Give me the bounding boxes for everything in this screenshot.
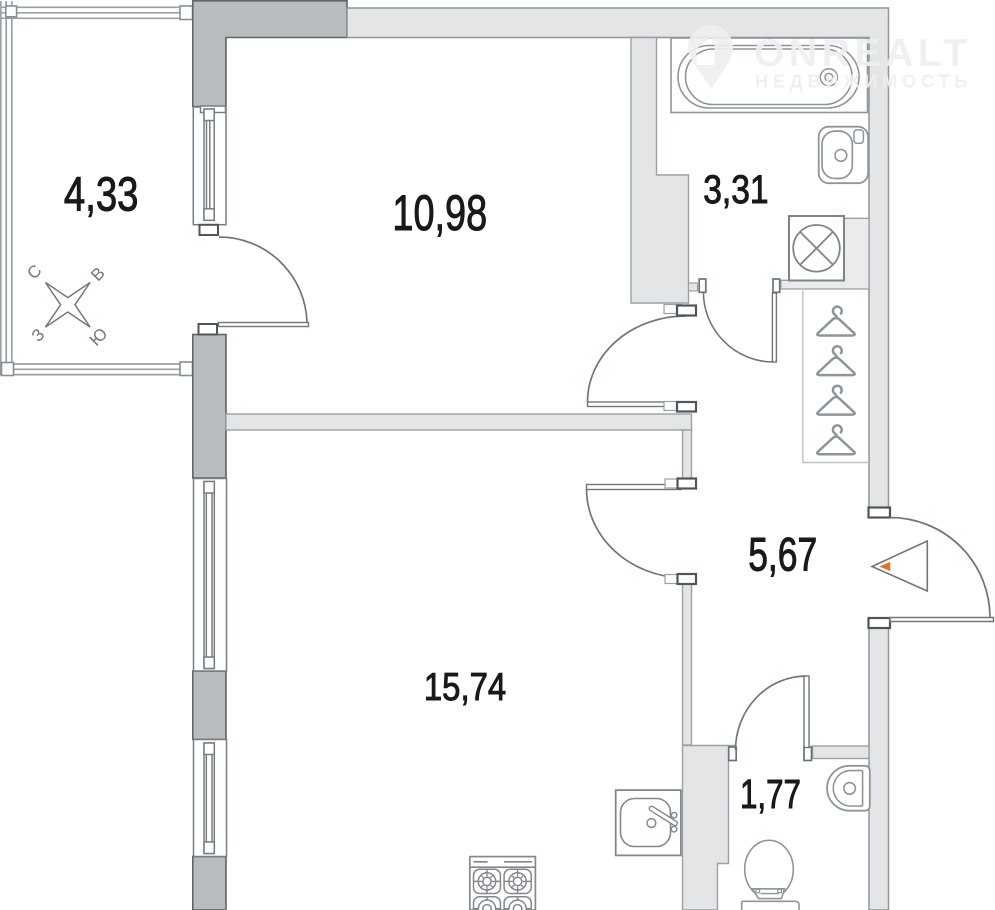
svg-text:НЕДВИЖИМОСТЬ: НЕДВИЖИМОСТЬ [755, 72, 972, 92]
svg-text:3,31: 3,31 [703, 168, 768, 212]
svg-text:1,77: 1,77 [740, 771, 801, 817]
svg-text:15,74: 15,74 [424, 666, 506, 709]
svg-text:ONREALT: ONREALT [754, 32, 972, 75]
svg-text:5,67: 5,67 [748, 528, 817, 581]
svg-text:4,33: 4,33 [64, 169, 139, 222]
svg-text:10,98: 10,98 [392, 185, 487, 241]
